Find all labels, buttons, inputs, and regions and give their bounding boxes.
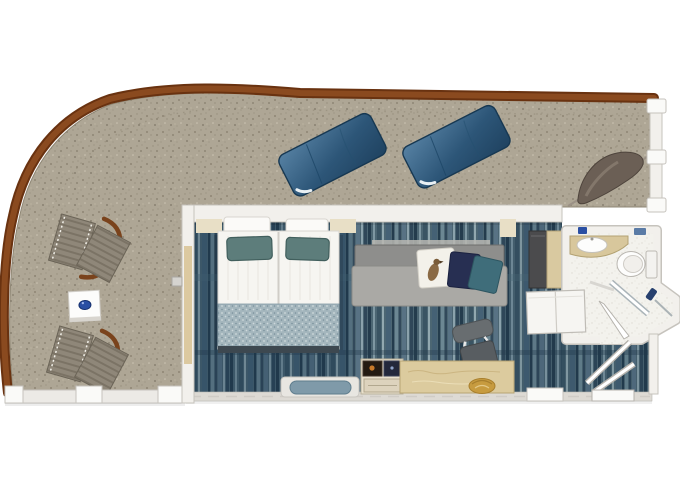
entry-door	[592, 390, 634, 401]
floor-plan	[0, 0, 680, 491]
balcony-glass-door	[184, 246, 192, 364]
gold-object	[469, 379, 495, 394]
floor-plan-image	[0, 0, 680, 491]
pillow-right	[286, 237, 330, 260]
desk	[400, 361, 514, 394]
wardrobe	[526, 290, 585, 334]
pillow-left	[227, 236, 273, 261]
shelf-trim	[500, 219, 516, 237]
blue-bowl	[79, 300, 91, 310]
toiletry	[634, 228, 646, 235]
toilet	[617, 251, 657, 278]
double-bed	[214, 231, 343, 353]
bed-runner	[218, 304, 339, 346]
minibar-cabinet	[361, 359, 403, 394]
side-table	[68, 290, 101, 322]
wall-shadow	[186, 401, 652, 404]
window-bench	[281, 377, 359, 397]
sofa-ledge	[372, 240, 490, 245]
sofa	[352, 240, 507, 306]
bed-base	[218, 346, 339, 353]
entry-right-wall	[649, 334, 658, 394]
door-handle	[172, 277, 182, 286]
wall-post	[527, 388, 563, 401]
tall-cabinets	[529, 231, 562, 288]
toiletry	[578, 227, 587, 234]
cabin	[172, 205, 676, 404]
